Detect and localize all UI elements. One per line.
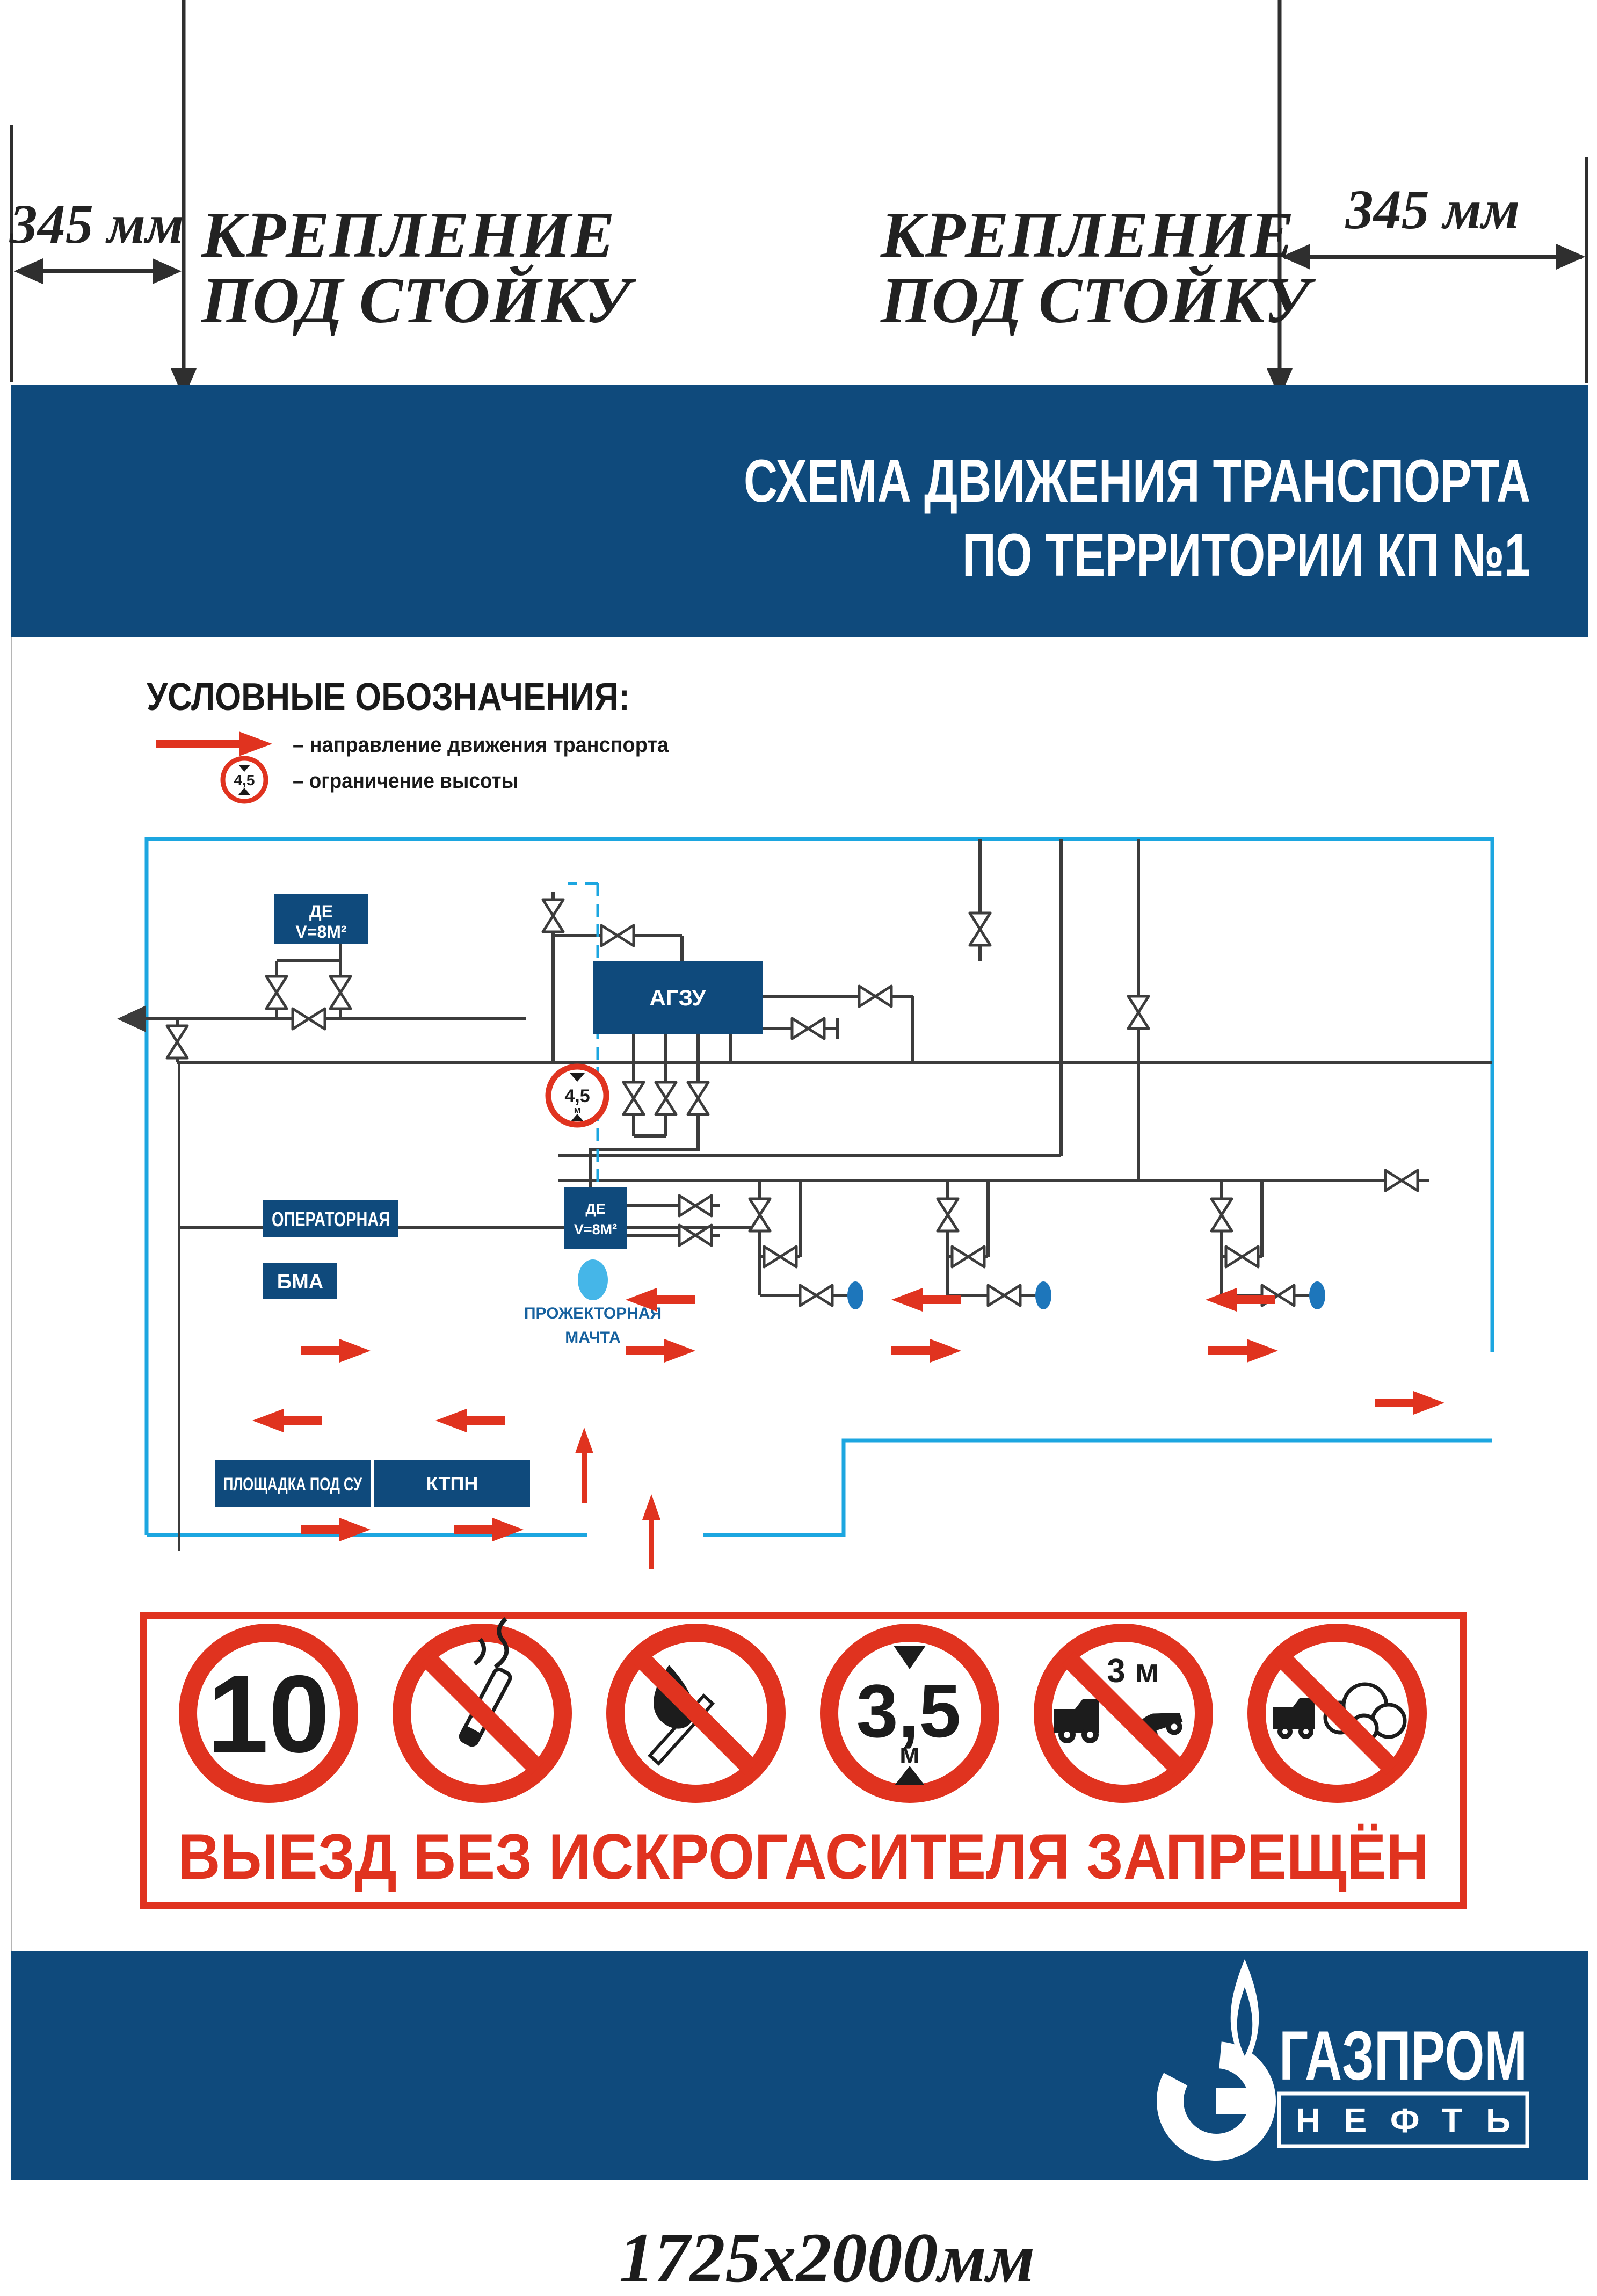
wellhead-icon: [1309, 1281, 1325, 1309]
valve-icon: [970, 913, 990, 945]
size-note: 1725х2000мм: [619, 2218, 1035, 2296]
legend-height-sign-icon: 4,5 м: [223, 758, 266, 801]
mount-label-right-line2: ПОД СТОЙКУ: [880, 263, 1316, 337]
tank-center-label-line1: ДЕ: [585, 1201, 605, 1217]
valve-icon: [623, 1082, 644, 1114]
mount-label-left-line2: ПОД СТОЙКУ: [201, 263, 637, 337]
mount-label-left-line1: КРЕПЛЕНИЕ: [201, 199, 615, 271]
mast-label-line1: ПРОЖЕКТОРНАЯ: [524, 1305, 662, 1322]
sign-height-limit: 3,5 м: [829, 1633, 990, 1794]
ktpn-label: КТПН: [426, 1473, 478, 1495]
traffic-arrows: [252, 1288, 1444, 1569]
valve-icon: [800, 1285, 832, 1306]
valve-icon: [601, 925, 634, 946]
tank-center-label-line2: V=8М²: [574, 1221, 617, 1237]
speed-limit-value: 10: [207, 1653, 330, 1776]
diagram-height-sign: 4,5 м: [548, 1067, 606, 1125]
legend-direction-label: – направление движения транспорта: [293, 733, 669, 757]
valve-icon: [764, 1247, 796, 1267]
traffic-arrow: [301, 1518, 371, 1541]
traffic-arrow: [454, 1518, 524, 1541]
mount-label-right-line1: КРЕПЛЕНИЕ: [880, 199, 1294, 271]
signage-sheet: 345 мм 345 мм КРЕПЛЕНИЕ ПОД СТОЙКУ КРЕПЛ…: [0, 0, 1597, 2296]
dim-arrowhead: [1556, 244, 1585, 270]
sign-min-distance: 3 м: [1043, 1633, 1204, 1794]
traffic-arrow: [301, 1339, 371, 1363]
valve-icon: [1211, 1199, 1232, 1231]
traffic-arrow: [575, 1428, 593, 1503]
height-limit-unit: м: [899, 1738, 920, 1769]
sheet-canvas: 345 мм 345 мм КРЕПЛЕНИЕ ПОД СТОЙКУ КРЕПЛ…: [0, 0, 1597, 2296]
valve-icon: [543, 900, 563, 932]
tank-west-label-line1: ДЕ: [309, 902, 333, 921]
diagram-height-sign-value: 4,5: [564, 1086, 590, 1106]
pipes: [121, 839, 1492, 1551]
dim-arrowhead: [153, 258, 182, 284]
page-title-line2: ПО ТЕРРИТОРИИ КП №1: [962, 522, 1530, 589]
legend-height-sign-value: 4,5: [234, 772, 255, 788]
sign-no-exhaust: [1257, 1633, 1418, 1794]
floodlight-mast-icon: [578, 1259, 608, 1300]
legend-height-sign-unit: м: [241, 787, 247, 796]
traffic-arrow: [891, 1288, 961, 1312]
brand-name-top: ГАЗПРОМ: [1279, 2016, 1527, 2095]
valve-icon: [1128, 996, 1149, 1029]
valve-icon: [656, 1082, 676, 1114]
valve-icon: [293, 1009, 325, 1029]
valve-icon: [266, 976, 287, 1009]
distance-limit-value: 3 м: [1107, 1653, 1159, 1690]
dim-label-right: 345 мм: [1345, 179, 1520, 241]
prohibition-caption: ВЫЕЗД БЕЗ ИСКРОГАСИТЕЛЯ ЗАПРЕЩЁН: [178, 1821, 1429, 1893]
valve-icon: [1385, 1170, 1418, 1191]
dim-label-left: 345 мм: [9, 193, 184, 255]
legend-height-label: – ограничение высоты: [293, 769, 518, 793]
sign-speed-limit: 10: [188, 1633, 349, 1794]
valve-icon: [859, 986, 891, 1006]
page-title-line1: СХЕМА ДВИЖЕНИЯ ТРАНСПОРТА: [744, 447, 1530, 515]
dim-arrowhead: [14, 258, 43, 284]
valve-icon: [679, 1196, 712, 1216]
traffic-arrow: [435, 1409, 505, 1432]
valve-icon: [167, 1026, 187, 1058]
valve-icon: [938, 1199, 958, 1231]
sign-no-open-fire: [615, 1633, 776, 1794]
valve-icon: [750, 1199, 770, 1231]
valve-icon: [330, 976, 351, 1009]
diagram-height-sign-unit: м: [574, 1105, 581, 1115]
bma-label: БМА: [277, 1271, 323, 1293]
tank-west-label-line2: V=8М²: [295, 922, 346, 941]
valve-icon: [688, 1082, 708, 1114]
traffic-arrow: [642, 1494, 660, 1569]
pad-su-label: ПЛОЩАДКА ПОД СУ: [223, 1474, 362, 1495]
legend-direction-arrow-icon: [156, 731, 272, 756]
traffic-arrow: [252, 1409, 322, 1432]
traffic-arrow: [1208, 1339, 1278, 1363]
wellhead-icon: [847, 1281, 863, 1309]
valve-icon: [792, 1018, 824, 1039]
valve-icon: [988, 1285, 1020, 1306]
valve-icon: [1226, 1247, 1258, 1267]
mast-label-line2: МАЧТА: [565, 1329, 621, 1346]
operator-room-label: ОПЕРАТОРНАЯ: [272, 1208, 390, 1231]
traffic-arrow: [626, 1339, 695, 1363]
traffic-arrow: [1375, 1391, 1444, 1415]
valves: [167, 900, 1418, 1306]
traffic-arrow: [891, 1339, 961, 1363]
valve-icon: [952, 1247, 984, 1267]
sign-no-smoking: [402, 1619, 563, 1794]
pipe-west-arrowhead: [117, 1005, 146, 1032]
legend-heading: УСЛОВНЫЕ ОБОЗНАЧЕНИЯ:: [147, 676, 630, 719]
wellhead-icon: [1035, 1281, 1051, 1309]
tank-center-box: [564, 1187, 627, 1249]
agzu-label: АГЗУ: [650, 985, 707, 1010]
